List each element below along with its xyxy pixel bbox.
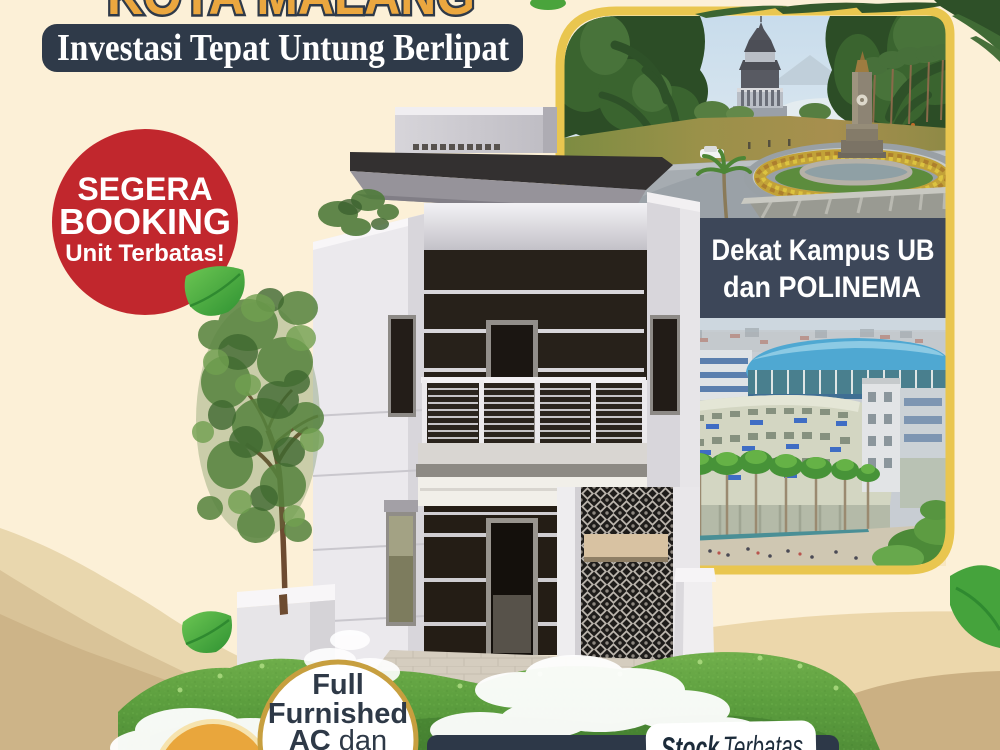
svg-text:KOTA MALANG: KOTA MALANG: [107, 0, 475, 26]
svg-text:Full: Full: [312, 669, 364, 701]
svg-text:Stock: Stock: [661, 729, 721, 750]
svg-text:dan POLINEMA: dan POLINEMA: [723, 271, 921, 304]
svg-text:BOOKING: BOOKING: [59, 201, 231, 242]
svg-text:Dekat Kampus UB: Dekat Kampus UB: [712, 234, 935, 267]
svg-text:Terbatas: Terbatas: [723, 728, 804, 750]
svg-text:Investasi Tepat Untung Berlipa: Investasi Tepat Untung Berlipat: [57, 27, 509, 69]
svg-text:AC dan: AC dan: [289, 725, 387, 750]
svg-text:Unit Terbatas!: Unit Terbatas!: [65, 240, 225, 267]
